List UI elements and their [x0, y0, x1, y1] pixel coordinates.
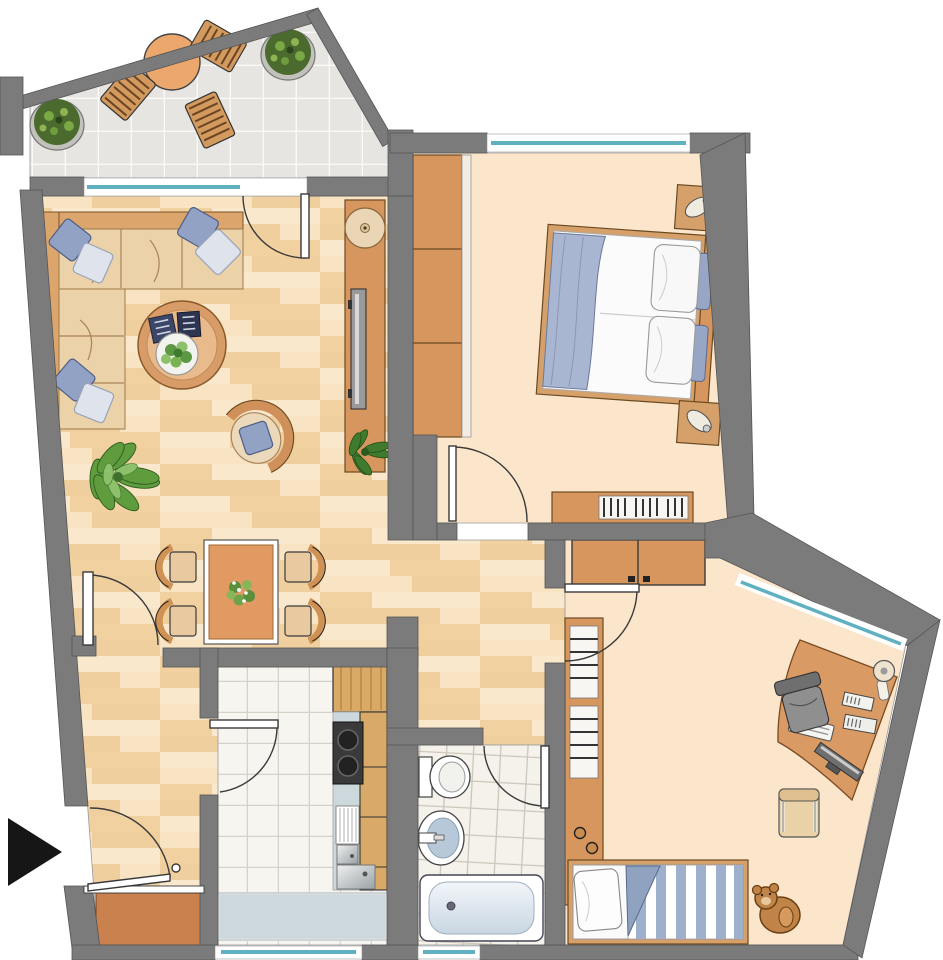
kids-bed: [568, 860, 748, 944]
dining-chair: [285, 601, 325, 641]
coffee-table-plant: [156, 333, 198, 375]
kitchen-base-cabinets: [360, 712, 387, 890]
double-bed: [536, 220, 720, 410]
bedroom-wardrobe: [413, 155, 462, 437]
entrance-landing: [96, 893, 204, 945]
potted-shrub: [30, 99, 84, 150]
bottom-wall-a: [72, 945, 215, 960]
kids-wardrobe: [572, 540, 705, 585]
left-wall-stub: [0, 77, 23, 155]
living-bedroom-wall: [388, 196, 413, 540]
bath-top-wall: [387, 728, 483, 745]
side-chair: [779, 789, 819, 837]
window-counter: [218, 893, 387, 940]
pillow: [650, 244, 700, 313]
toilet: [419, 756, 470, 798]
bathtub: [420, 875, 543, 941]
dining-chair: [285, 547, 325, 587]
entrance-arrow: [8, 818, 62, 886]
kids-west-wall-upper: [545, 540, 565, 588]
hall-pier: [413, 435, 437, 540]
bottom-wall-b: [362, 945, 418, 960]
nightstand: [677, 401, 722, 446]
washbasin: [418, 811, 464, 865]
kitchen-bath-wall: [387, 648, 418, 945]
kids-pillow: [573, 868, 622, 932]
tv: [348, 289, 366, 409]
bedroom-bookshelf: [552, 492, 693, 523]
dining-chair: [156, 601, 196, 641]
cooktop: [333, 722, 363, 784]
bedroom-south-wall-right: [528, 523, 733, 540]
kitchen-west-wall-upper: [200, 648, 218, 718]
kitchen-west-wall-lower: [200, 795, 218, 945]
dining-chair: [156, 547, 196, 587]
bottom-wall-c: [480, 945, 858, 960]
bedroom-north-wall-left: [390, 133, 487, 153]
pillow: [645, 316, 695, 385]
bedroom-south-wall-left: [437, 523, 457, 540]
kitchen-top-wall: [163, 648, 390, 667]
floor-plan-image: [0, 0, 943, 960]
potted-shrub: [261, 29, 315, 80]
